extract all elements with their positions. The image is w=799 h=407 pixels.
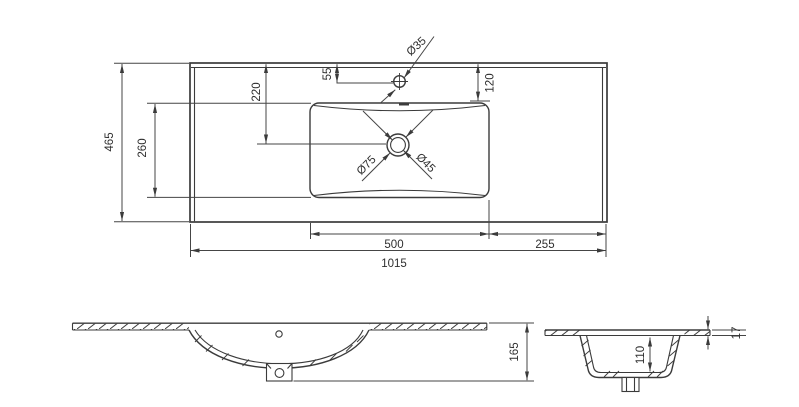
front-drain-fitting: [267, 364, 293, 382]
front-section-view: 165: [73, 323, 535, 381]
side-bowl-outline: [580, 336, 680, 378]
dim-right-offset-label: 255: [535, 239, 554, 251]
front-countertop-slab: [73, 323, 487, 330]
dim-faucet-diameter-label: Ø35: [405, 35, 429, 58]
dim-basin-from-back-label: 120: [485, 73, 497, 92]
dim-front-height: 165: [294, 323, 535, 381]
drawing-canvas: 465 260 220 55 120: [0, 0, 799, 407]
dim-overall-depth-label: 465: [104, 132, 116, 151]
dim-faucet-from-back-label: 55: [322, 68, 334, 81]
dim-side-inner-depth-label: 110: [635, 346, 647, 364]
dim-drain-from-back-label: 220: [251, 82, 263, 101]
dim-front-height-label: 165: [509, 342, 521, 361]
front-faucet-hole: [276, 331, 282, 337]
dim-side-inner-depth: 110: [635, 338, 650, 372]
dim-side-thickness-label: 17: [731, 327, 743, 340]
sink-technical-drawing: 465 260 220 55 120: [0, 0, 799, 407]
plan-view: 465 260 220 55 120: [104, 35, 607, 270]
dim-right-offset: 255: [489, 234, 606, 251]
side-section-view: 110 17: [545, 316, 746, 392]
side-countertop-slab: [545, 330, 710, 336]
dim-side-thickness: 17: [708, 316, 746, 350]
dim-basin-depth-label: 260: [137, 138, 149, 157]
front-bowl-outline: [189, 330, 369, 368]
dim-overall-width-label: 1015: [381, 258, 407, 270]
dim-basin-width-label: 500: [384, 239, 403, 251]
side-drain-fitting: [622, 378, 639, 392]
